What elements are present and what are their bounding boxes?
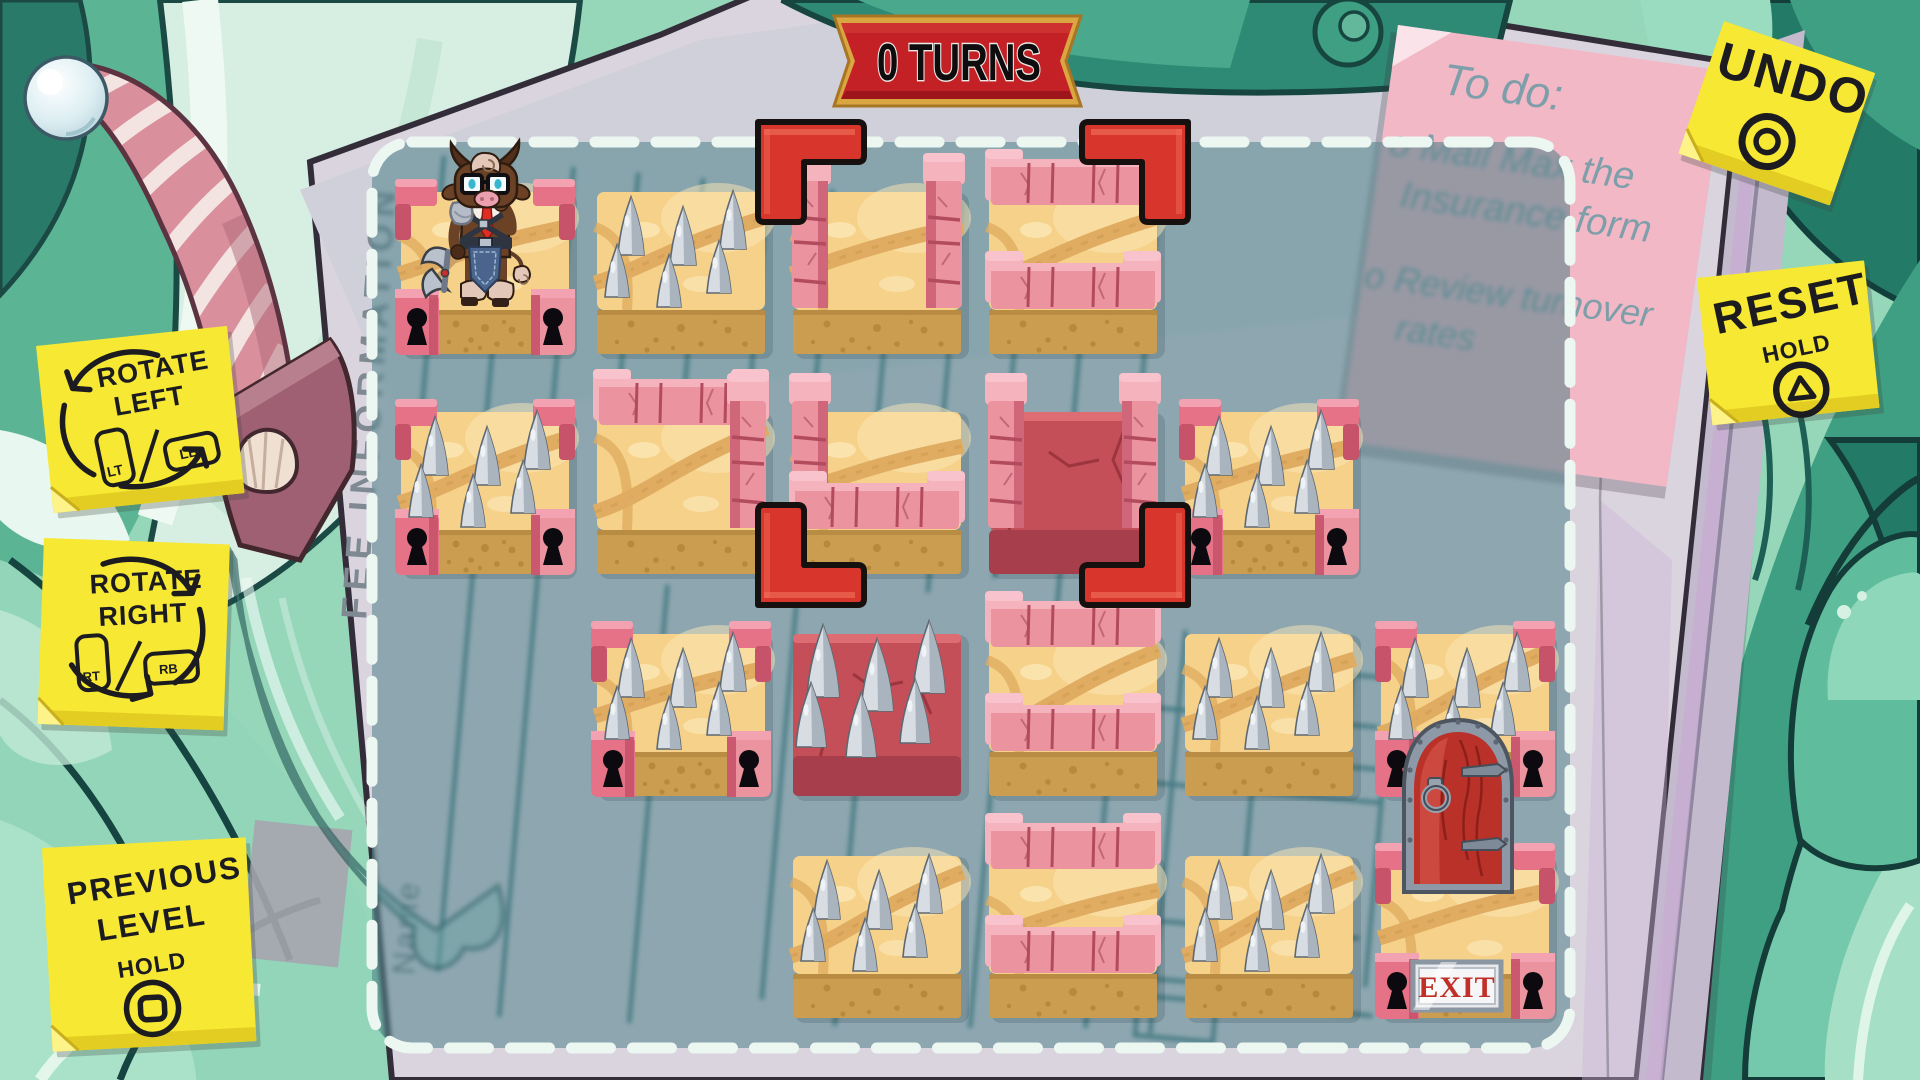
svg-text:RT: RT bbox=[82, 668, 100, 684]
svg-text:EXIT: EXIT bbox=[1418, 971, 1495, 1004]
svg-text:RB: RB bbox=[158, 661, 178, 677]
svg-text:0 TURNS: 0 TURNS bbox=[877, 34, 1041, 92]
svg-text:RIGHT: RIGHT bbox=[98, 597, 188, 632]
